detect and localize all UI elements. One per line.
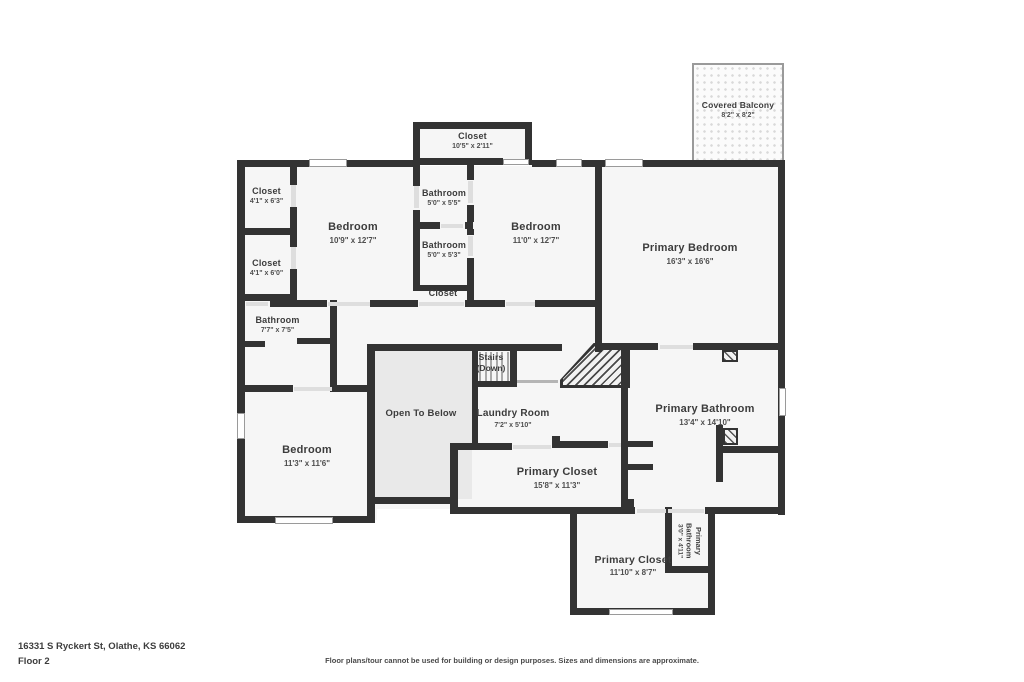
- wall-segment: [413, 122, 532, 129]
- room-label-primary-bathroom-small: Primary Bathroom 3'0" x 4'11": [673, 513, 703, 569]
- stair-half-wall: [517, 380, 558, 383]
- door-opening: [609, 443, 621, 447]
- room-label-primary-bathroom: Primary Bathroom 13'4" x 14'10": [630, 403, 780, 428]
- wall-segment: [467, 258, 474, 307]
- wall-segment: [692, 160, 785, 167]
- wall-segment: [627, 499, 634, 508]
- room-label-closet-upper-left: Closet 4'1" x 6'3": [240, 186, 293, 207]
- wall-segment: [778, 160, 785, 515]
- wall-segment: [467, 160, 474, 180]
- fixture-hatch: [723, 428, 738, 445]
- wall-segment: [290, 207, 297, 247]
- wall-segment: [716, 425, 723, 482]
- door-opening: [294, 387, 332, 391]
- wall-segment: [330, 300, 337, 392]
- fixture-hatch: [722, 350, 738, 362]
- window: [605, 159, 643, 167]
- wall-segment: [552, 441, 608, 448]
- window: [275, 517, 333, 524]
- wall-segment: [245, 341, 265, 347]
- wall-segment: [595, 160, 602, 352]
- wall-segment: [450, 507, 635, 514]
- wall-segment: [270, 300, 327, 307]
- wall-segment: [535, 300, 602, 307]
- room-label-covered-balcony: Covered Balcony 8'2" x 8'2": [692, 100, 784, 120]
- wall-segment: [237, 385, 293, 392]
- wall-segment: [705, 507, 785, 514]
- room-label-bedroom-2: Bedroom 11'0" x 12'7": [481, 221, 591, 246]
- window: [503, 159, 529, 165]
- room-label-bathroom-left: Bathroom 7'7" x 7'5": [240, 315, 315, 336]
- wall-segment: [458, 443, 512, 450]
- footer-address: 16331 S Ryckert St, Olathe, KS 66062: [18, 641, 185, 652]
- door-opening: [513, 445, 551, 449]
- wall-segment: [370, 300, 418, 307]
- wall-segment: [413, 158, 503, 165]
- room-label-bathroom-mid: Bathroom 5'0" x 5'3": [414, 240, 474, 261]
- wall-segment: [472, 381, 517, 387]
- room-label-bedroom-1: Bedroom 10'9" x 12'7": [300, 221, 406, 246]
- floor-plan: Covered Balcony 8'2" x 8'2" Closet 10'5"…: [0, 0, 1024, 682]
- wall-segment: [628, 441, 653, 447]
- room-label-open-to-below: Open To Below: [371, 408, 471, 420]
- window: [309, 159, 347, 167]
- window: [609, 609, 673, 615]
- wall-segment: [467, 229, 474, 235]
- wall-segment: [290, 160, 297, 185]
- room-label-stairs: Stairs (Down): [466, 352, 516, 373]
- wall-segment: [723, 446, 783, 453]
- wall-segment: [374, 344, 562, 351]
- wall-segment: [333, 385, 374, 392]
- wall-segment: [237, 228, 297, 235]
- wall-segment: [693, 343, 785, 350]
- window: [556, 159, 582, 167]
- room-label-bedroom-3: Bedroom 11'3" x 11'6": [254, 444, 360, 469]
- wall-segment: [628, 464, 653, 470]
- wall-segment: [374, 497, 458, 504]
- wall-segment: [297, 338, 330, 344]
- wall-segment: [708, 507, 715, 615]
- room-label-laundry-room: Laundry Room 7'2" x 5'10": [463, 408, 563, 430]
- door-opening: [506, 302, 535, 306]
- window: [779, 388, 786, 416]
- wall-segment: [413, 160, 420, 186]
- room-label-primary-bedroom: Primary Bedroom 16'3" x 16'6": [610, 242, 770, 267]
- window: [237, 413, 245, 439]
- door-opening: [441, 224, 463, 228]
- wall-segment: [237, 160, 245, 523]
- door-opening: [660, 345, 693, 349]
- door-opening: [419, 302, 464, 306]
- room-label-closet-top: Closet 10'5" x 2'11": [413, 131, 532, 152]
- footer-disclaimer: Floor plans/tour cannot be used for buil…: [0, 656, 1024, 665]
- wall-segment: [367, 344, 375, 523]
- room-label-bathroom-top: Bathroom 5'0" x 5'5": [414, 188, 474, 209]
- wall-segment: [413, 222, 440, 229]
- door-opening: [328, 302, 370, 306]
- room-label-primary-closet-upper: Primary Closet 15'8" x 11'3": [487, 466, 627, 491]
- door-opening: [637, 509, 666, 513]
- room-label-closet-mid-left: Closet 4'1" x 6'0": [240, 258, 293, 279]
- room-label-closet-small: Closet: [416, 288, 470, 299]
- wall-segment: [465, 222, 473, 229]
- door-opening: [246, 302, 268, 306]
